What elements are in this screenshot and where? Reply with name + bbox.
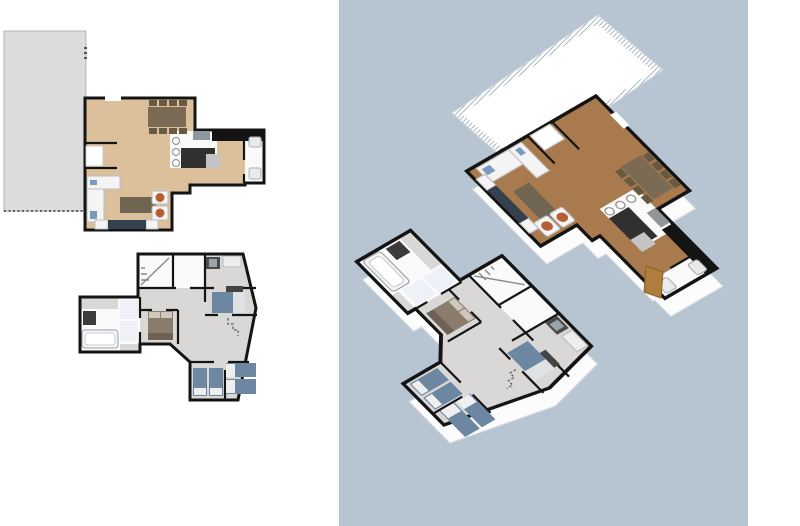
floor-plan-document xyxy=(0,0,800,526)
wood-door-3d xyxy=(644,266,663,298)
right-margin-strip xyxy=(748,0,800,526)
terrace-2d xyxy=(4,31,87,211)
plan-canvas xyxy=(0,0,800,526)
